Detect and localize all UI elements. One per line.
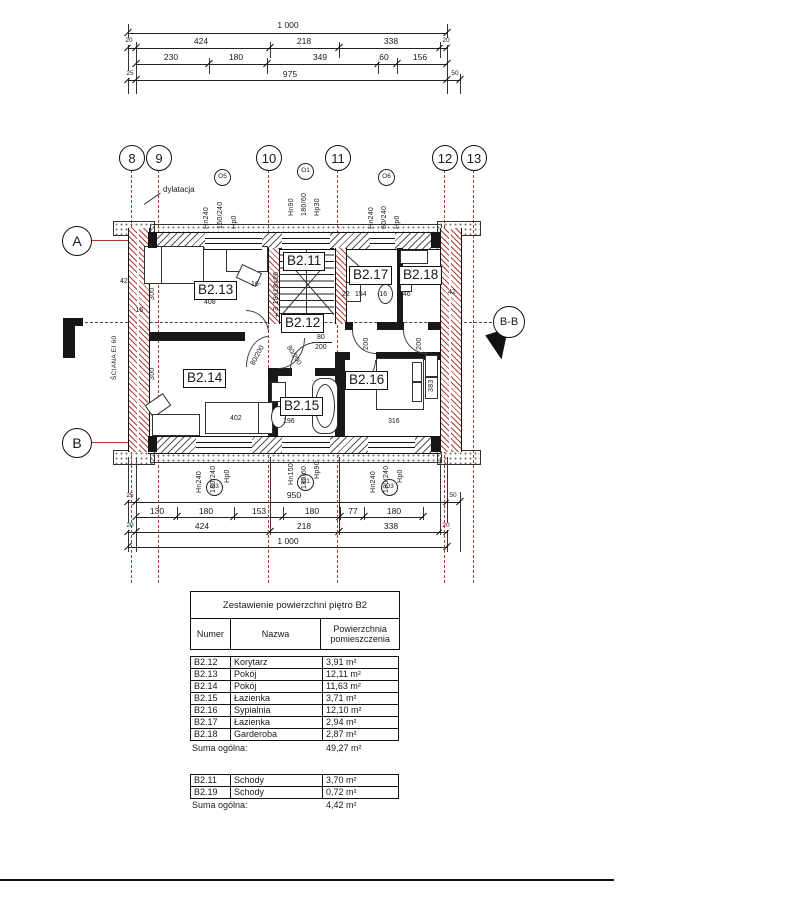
expansion-joint <box>449 228 451 452</box>
cell-number: B2.15 <box>191 693 231 705</box>
footer-rule <box>0 879 614 881</box>
area-sum-value: 49,27 m² <box>326 744 362 753</box>
grid-bubble-12: 12 <box>432 145 458 171</box>
dim-label: 20 <box>124 38 133 45</box>
window-top-o1 <box>282 232 330 250</box>
window-note: Hp30 <box>314 184 321 216</box>
plan-dim: 196 <box>283 418 295 425</box>
dim-label: 20 <box>441 38 450 45</box>
cell-number: B2.14 <box>191 681 231 693</box>
plan-dim: 200 <box>315 344 327 351</box>
cell-area: 0,72 m² <box>323 787 399 799</box>
corner-post <box>148 436 157 452</box>
dim-line <box>128 547 447 548</box>
table-row: B2.11 Schody 3,70 m² <box>191 775 399 787</box>
window-top-o5 <box>205 232 262 250</box>
cell-area: 3,70 m² <box>323 775 399 787</box>
table-row: B2.17 Łazienka 2,94 m² <box>191 717 399 729</box>
dim-label: 218 <box>296 522 312 531</box>
room-label-b2-12: B2.12 <box>281 314 324 333</box>
table-row: B2.12 Korytarz 3,91 m² <box>191 657 399 669</box>
dim-label: 156 <box>412 53 428 62</box>
window-top-o6 <box>370 232 395 250</box>
dim-label: 25 <box>125 493 134 500</box>
extension-line <box>339 457 340 535</box>
window-code-circle: O6 <box>378 169 395 186</box>
plan-dim: 200 <box>363 330 370 350</box>
cell-name: Schody <box>231 787 323 799</box>
table-row: B2.13 Pokój 12,11 m² <box>191 669 399 681</box>
header-numer: Numer <box>191 619 231 649</box>
cell-area: 12,10 m² <box>323 705 399 717</box>
extension-line <box>136 457 137 552</box>
cell-number: B2.18 <box>191 729 231 741</box>
header-nazwa: Nazwa <box>231 619 321 649</box>
axis-bubble-a: A <box>62 226 92 256</box>
window-note: Hn150 <box>288 445 295 485</box>
dim-label: 349 <box>312 53 328 62</box>
plan-dim: 80 <box>317 334 325 341</box>
wall-b213-b214 <box>150 332 245 341</box>
window-note: Hn240 <box>368 183 375 229</box>
expansion-joint <box>137 228 139 452</box>
cell-area: 12,11 m² <box>323 669 399 681</box>
grid-bubble-8: 8 <box>119 145 145 171</box>
dim-line <box>128 48 447 49</box>
wall-b215-top <box>315 368 335 376</box>
grid-bubble-9: 9 <box>146 145 172 171</box>
room-label-b2-15: B2.15 <box>280 397 323 416</box>
cell-area: 3,91 m² <box>323 657 399 669</box>
window-note: Hn240 <box>370 447 377 493</box>
table-row: B2.16 Sypialnia 12,10 m² <box>191 705 399 717</box>
plan-dim: 154 <box>355 291 367 298</box>
window-note: Hn240 <box>196 447 203 493</box>
header-powierzchnia: Powierzchnia pomieszczenia <box>321 619 399 649</box>
window-note: 60/240 <box>381 191 388 229</box>
door-arc-b218 <box>403 330 427 354</box>
dim-label: 338 <box>383 522 399 531</box>
area-sum-label: Suma ogólna: <box>192 744 248 753</box>
dim-label: 424 <box>194 522 210 531</box>
dim-label: 60 <box>378 53 389 62</box>
dim-label: 25 <box>125 71 134 78</box>
window-note: 180/60 <box>301 445 308 489</box>
plan-dim: -16 <box>133 307 143 314</box>
window-bottom-o3 <box>196 436 252 454</box>
cell-number: B2.16 <box>191 705 231 717</box>
extension-line <box>128 457 129 552</box>
room-label-b2-14: B2.14 <box>183 369 226 388</box>
cell-name: Pokój <box>231 681 323 693</box>
room-label-b2-11: B2.11 <box>283 252 325 271</box>
wall-note: ŚCIANA EI 60 <box>112 312 119 380</box>
dim-line <box>128 33 447 34</box>
plan-dim: 42 <box>120 278 128 285</box>
dim-label: 1 000 <box>276 21 299 30</box>
plan-dim: 402 <box>230 415 242 422</box>
section-bubble-bb: B-B <box>493 306 525 338</box>
window-note: Hp0 <box>231 201 238 229</box>
plan-dim: 300 <box>149 276 156 300</box>
dim-label: 20 <box>125 523 134 530</box>
dim-label: 50 <box>448 493 457 500</box>
cell-name: Garderoba <box>231 729 323 741</box>
window-note: Hp90 <box>314 449 321 479</box>
corner-post <box>431 232 440 248</box>
cell-number: B2.13 <box>191 669 231 681</box>
dim-label: 180 <box>198 507 214 516</box>
dim-label: 424 <box>193 37 209 46</box>
dim-label: 218 <box>296 37 312 46</box>
dim-label: 20 <box>441 523 450 530</box>
window-note: Hp0 <box>224 455 231 483</box>
wall-b218-bottom <box>428 322 440 330</box>
window-code-circle: O5 <box>214 169 231 186</box>
wall-b217-bottom <box>377 322 404 330</box>
table-row: B2.19 Schody 0,72 m² <box>191 787 399 799</box>
wall-b215-top <box>268 368 292 376</box>
window-note: Hp0 <box>394 201 401 229</box>
dim-label: 950 <box>286 491 302 500</box>
grid-bubble-11: 11 <box>325 145 351 171</box>
cell-name: Łazienka <box>231 693 323 705</box>
section-mark-left-stub <box>75 318 83 326</box>
room-label-b2-16: B2.16 <box>345 371 388 390</box>
grid-bubble-10: 10 <box>256 145 282 171</box>
dim-label: 230 <box>163 53 179 62</box>
dim-label: 130 <box>149 507 165 516</box>
room-label-b2-17: B2.17 <box>349 266 392 285</box>
room-label-b2-18: B2.18 <box>399 266 442 285</box>
cell-name: Korytarz <box>231 657 323 669</box>
window-note: 180/240 <box>383 449 390 493</box>
dim-label: 77 <box>347 507 358 516</box>
stairs-sum-value: 4,42 m² <box>326 801 357 810</box>
extension-line <box>447 24 448 94</box>
section-mark-left <box>63 318 75 358</box>
window-note: Hn240 <box>203 183 210 229</box>
table-row: B2.18 Garderoba 2,87 m² <box>191 729 399 741</box>
plan-dim: 300 <box>149 356 156 380</box>
dim-line <box>128 532 447 533</box>
plan-dim: 200 <box>416 330 423 350</box>
dim-label: 180 <box>228 53 244 62</box>
cell-name: Pokój <box>231 669 323 681</box>
cell-area: 3,71 m² <box>323 693 399 705</box>
plan-dim: 146 <box>399 291 411 298</box>
cell-name: Sypialnia <box>231 705 323 717</box>
plan-dim: 408 <box>204 299 216 306</box>
door-arc-b213 <box>246 310 269 333</box>
dim-label: 975 <box>282 70 298 79</box>
cell-number: B2.12 <box>191 657 231 669</box>
dim-label: 153 <box>251 507 267 516</box>
dim-label: 1 000 <box>276 537 299 546</box>
cell-area: 2,94 m² <box>323 717 399 729</box>
extension-line <box>447 457 448 552</box>
area-table: B2.12 Korytarz 3,91 m² B2.13 Pokój 12,11… <box>190 656 399 741</box>
table-row: B2.15 Łazienka 3,71 m² <box>191 693 399 705</box>
grid-bubble-13: 13 <box>461 145 487 171</box>
cell-number: B2.19 <box>191 787 231 799</box>
table-row: B2.14 Pokój 11,63 m² <box>191 681 399 693</box>
dim-label: 338 <box>383 37 399 46</box>
dim-label: 180 <box>386 507 402 516</box>
plan-dim: 22 <box>337 418 345 425</box>
wardrobe <box>152 414 200 436</box>
area-table-title: Zestawienie powierzchni piętro B2 <box>190 591 400 620</box>
dim-label: 50 <box>450 71 459 78</box>
corner-post <box>148 232 157 248</box>
window-note: 180/240 <box>210 449 217 493</box>
cell-area: 11,63 m² <box>323 681 399 693</box>
cell-number: B2.11 <box>191 775 231 787</box>
window-note: Hp0 <box>397 455 404 483</box>
area-table-header: Numer Nazwa Powierzchnia pomieszczenia <box>190 618 400 650</box>
stair-note: ±3 18x18x26 <box>273 262 280 318</box>
plan-dim: 22 <box>342 291 350 298</box>
outer-wall-right <box>440 228 462 452</box>
cell-area: 2,87 m² <box>323 729 399 741</box>
stairs-table: B2.11 Schody 3,70 m² B2.19 Schody 0,72 m… <box>190 774 399 799</box>
dylatacja-note: dylatacja <box>163 186 195 194</box>
pillow <box>412 362 422 382</box>
floorplan-sheet: 1 000 20 424 218 338 20 230 180 349 60 1… <box>0 0 801 898</box>
dim-line <box>136 64 447 65</box>
plan-dim: 383 <box>428 368 435 392</box>
room-label-b2-13: B2.13 <box>194 281 237 300</box>
corner-pad <box>437 450 481 465</box>
wall-b217-bottom <box>345 322 353 330</box>
pillow <box>412 382 422 402</box>
plan-dim: 16- <box>251 281 261 288</box>
plan-dim: 316 <box>388 418 400 425</box>
dim-line <box>128 80 460 81</box>
shelf <box>400 250 428 264</box>
plan-dim: 42 <box>448 289 456 296</box>
extension-line <box>136 42 137 94</box>
corner-post <box>431 436 440 452</box>
extension-line <box>270 457 271 535</box>
window-note: 160/240 <box>217 189 224 229</box>
window-note: Hn90 <box>288 180 295 216</box>
axis-bubble-b: B <box>62 428 92 458</box>
wall-b216-top <box>345 352 350 360</box>
cell-name: Schody <box>231 775 323 787</box>
dim-label: 180 <box>304 507 320 516</box>
extension-line <box>128 24 129 94</box>
cell-number: B2.17 <box>191 717 231 729</box>
stairs-sum-label: Suma ogólna: <box>192 801 248 810</box>
plan-dim: -16 <box>377 291 387 298</box>
dim-line <box>128 502 460 503</box>
window-note: 180/60 <box>301 178 308 216</box>
cell-name: Łazienka <box>231 717 323 729</box>
